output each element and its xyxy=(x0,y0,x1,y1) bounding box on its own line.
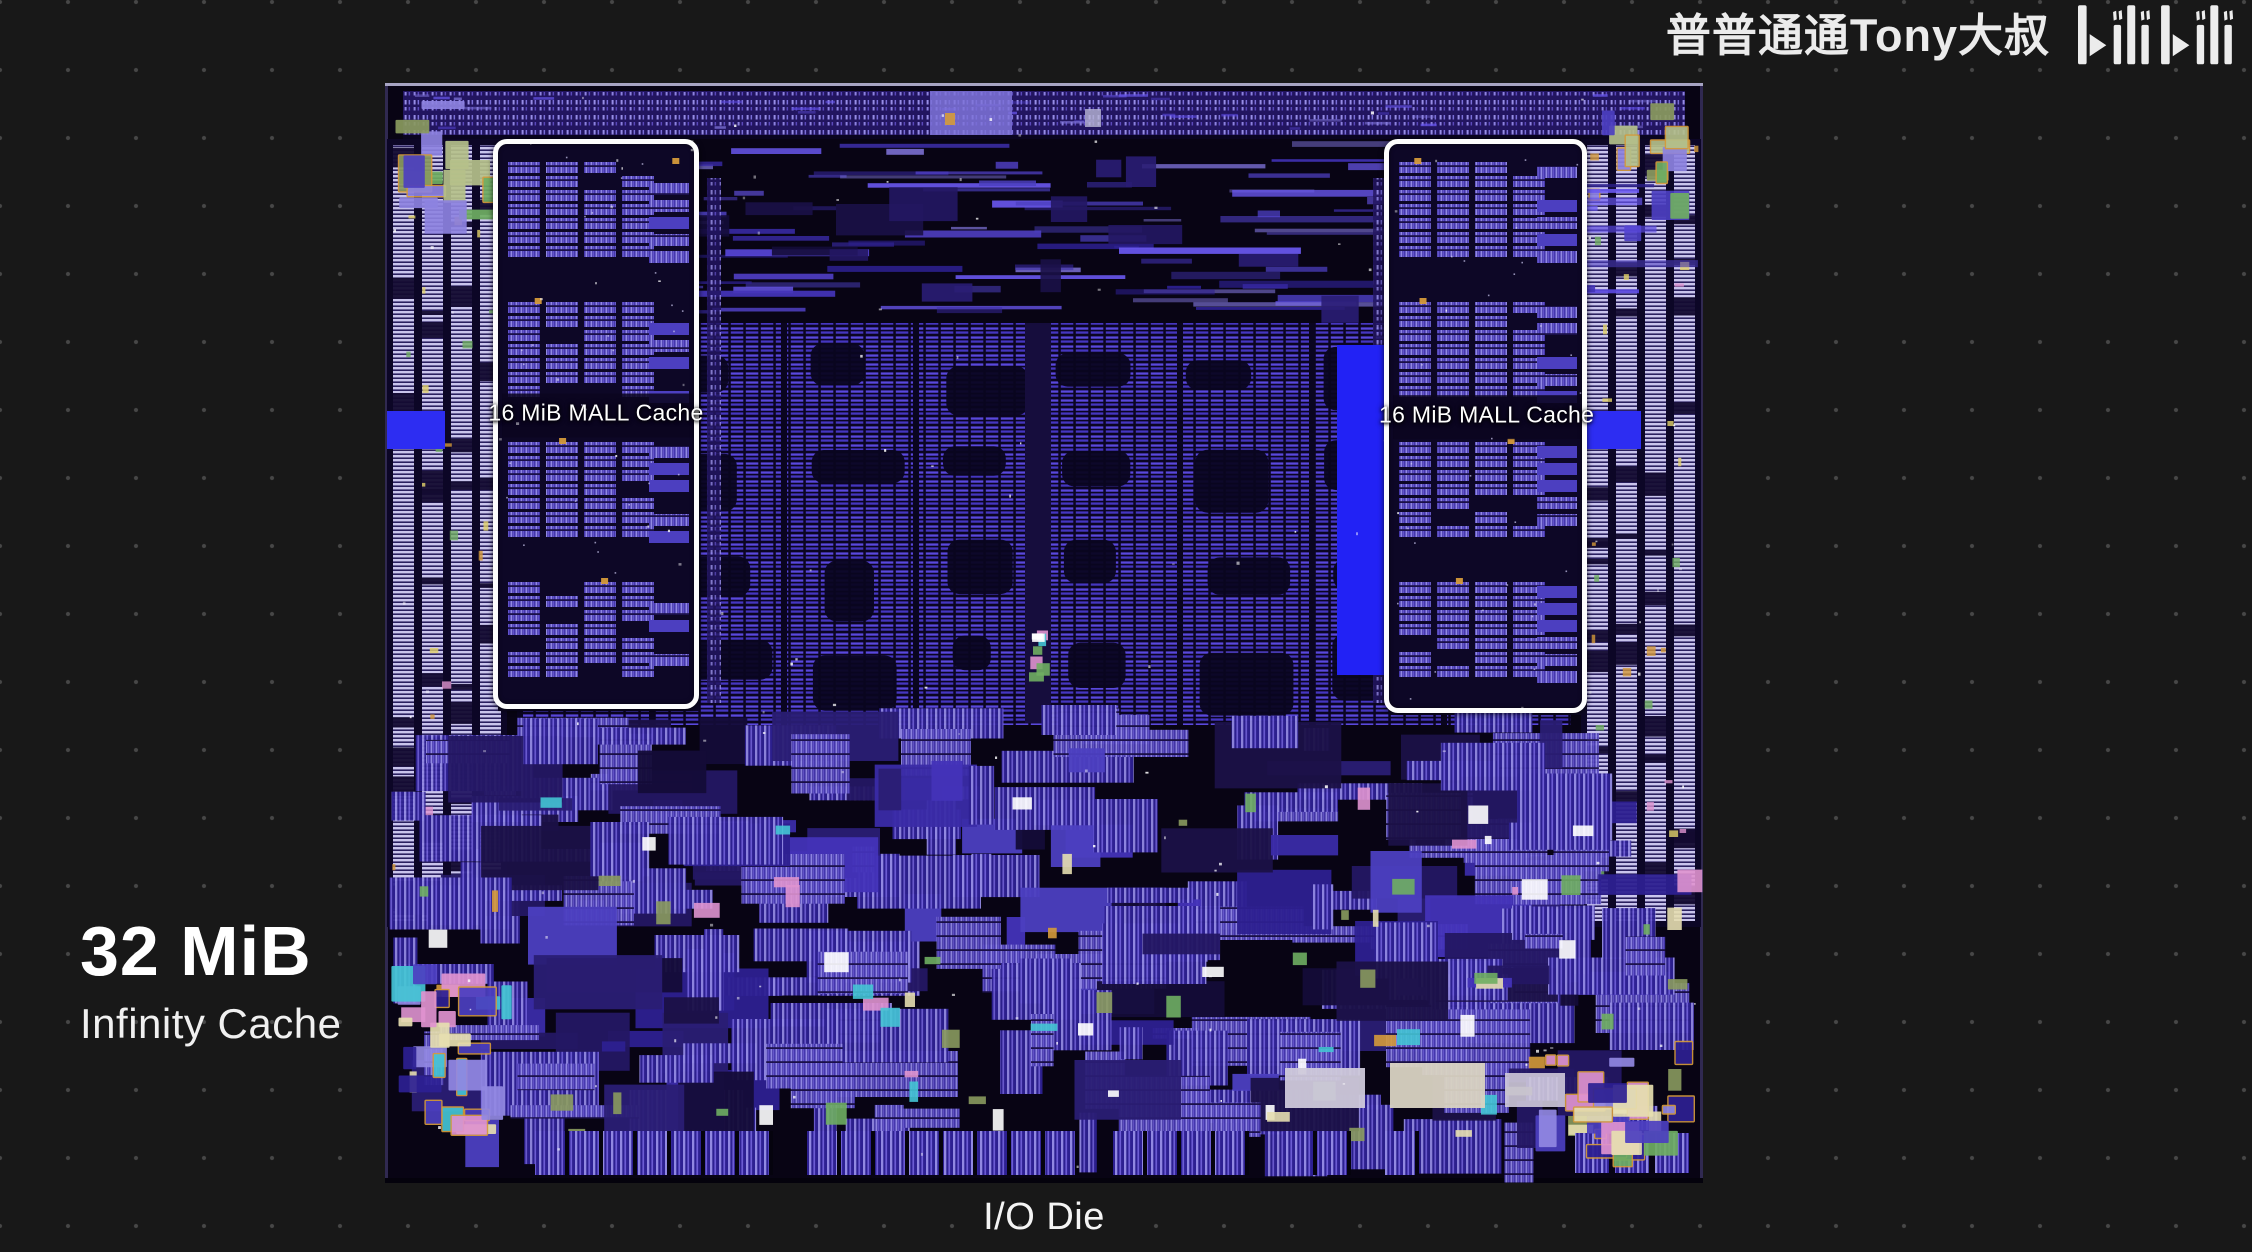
mall-cache-label-right: 16 MiB MALL Cache xyxy=(1379,401,1592,428)
channel-name: 普普通通Tony大叔 xyxy=(1666,9,2050,63)
video-frame: 普普通通Tony大叔 xyxy=(0,0,2252,1252)
die-photo: 16 MiB MALL Cache 16 MiB MALL Cache xyxy=(385,83,1703,1183)
bilibili-logo-icon xyxy=(2078,4,2238,68)
die-caption: I/O Die xyxy=(385,1196,1703,1239)
infinity-cache-size: 32 MiB xyxy=(80,916,341,986)
mall-cache-label-left: 16 MiB MALL Cache xyxy=(488,399,704,426)
infinity-cache-annotation: 32 MiB Infinity Cache xyxy=(80,916,341,1048)
mall-cache-box-right: 16 MiB MALL Cache xyxy=(1384,139,1587,713)
mall-cache-box-left: 16 MiB MALL Cache xyxy=(493,139,699,709)
header: 普普通通Tony大叔 xyxy=(1666,4,2238,68)
infinity-cache-name: Infinity Cache xyxy=(80,1000,341,1048)
